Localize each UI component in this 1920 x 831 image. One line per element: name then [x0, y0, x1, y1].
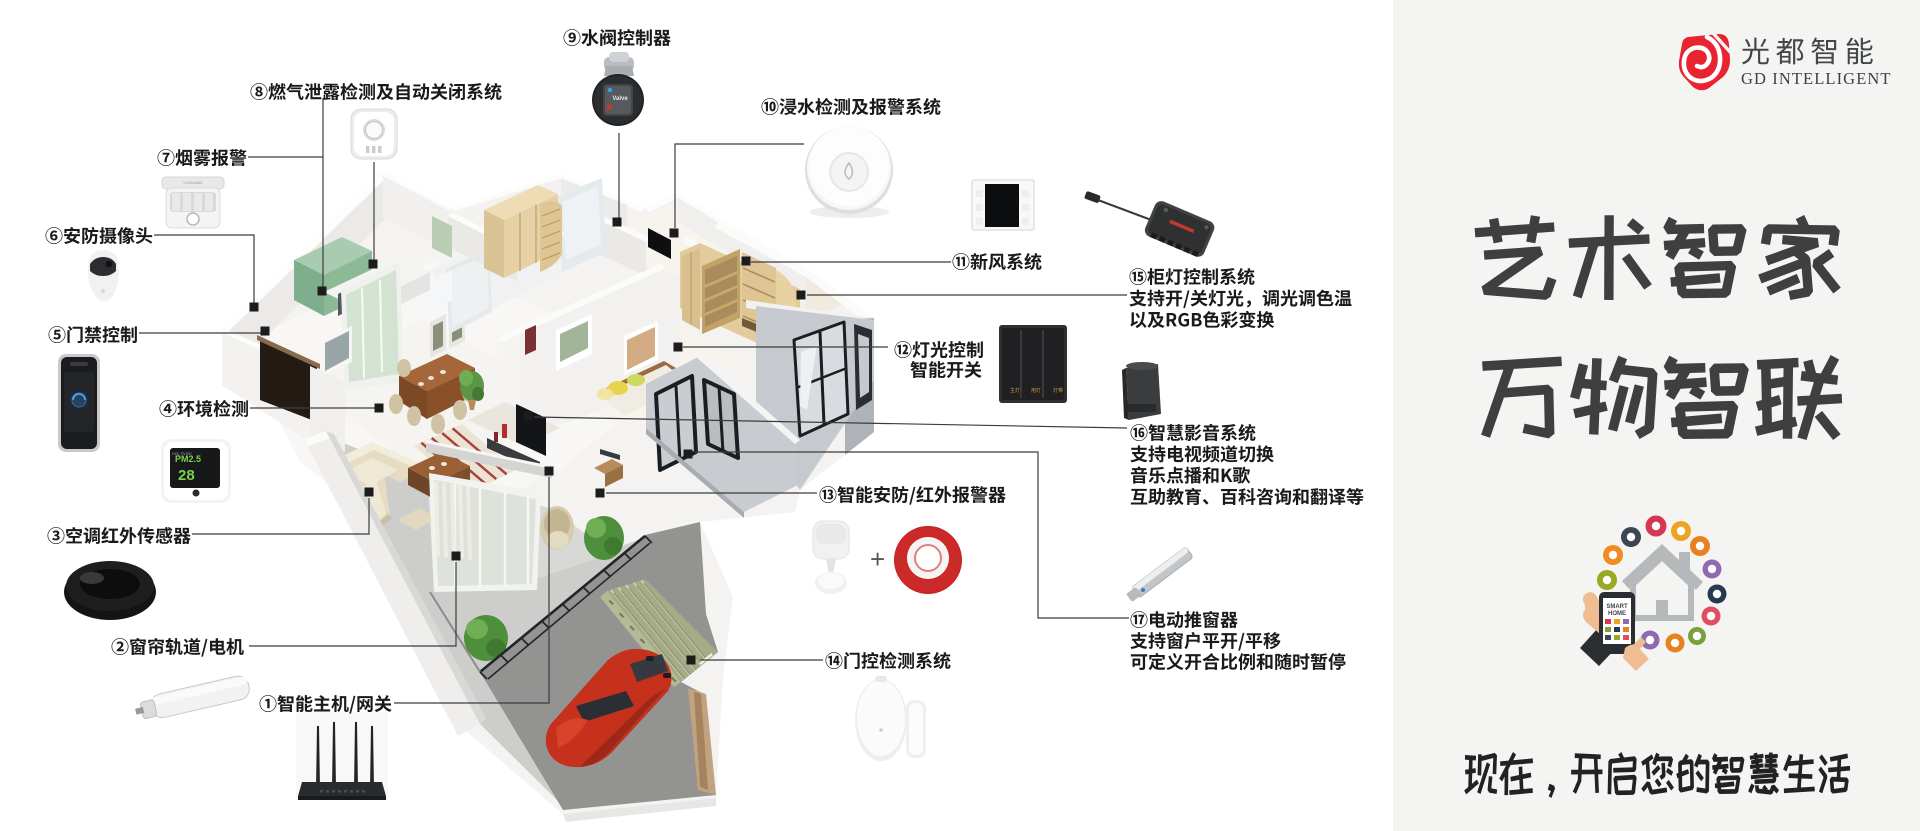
svg-text:HOME: HOME — [1608, 611, 1626, 617]
svg-text:GD INTELLIGENT: GD INTELLIGENT — [1741, 69, 1892, 88]
svg-text:CO₂ TVOC: CO₂ TVOC — [172, 451, 192, 456]
svg-text:用灯: 用灯 — [1031, 387, 1041, 394]
svg-text:SMART: SMART — [1606, 604, 1628, 610]
svg-text:+: + — [870, 544, 885, 574]
svg-text:Valve: Valve — [612, 96, 628, 102]
svg-text:28: 28 — [178, 467, 195, 484]
svg-text:主灯: 主灯 — [1010, 387, 1020, 394]
svg-text:LONLAND: LONLAND — [184, 180, 203, 185]
svg-text:灯带: 灯带 — [1053, 387, 1063, 394]
